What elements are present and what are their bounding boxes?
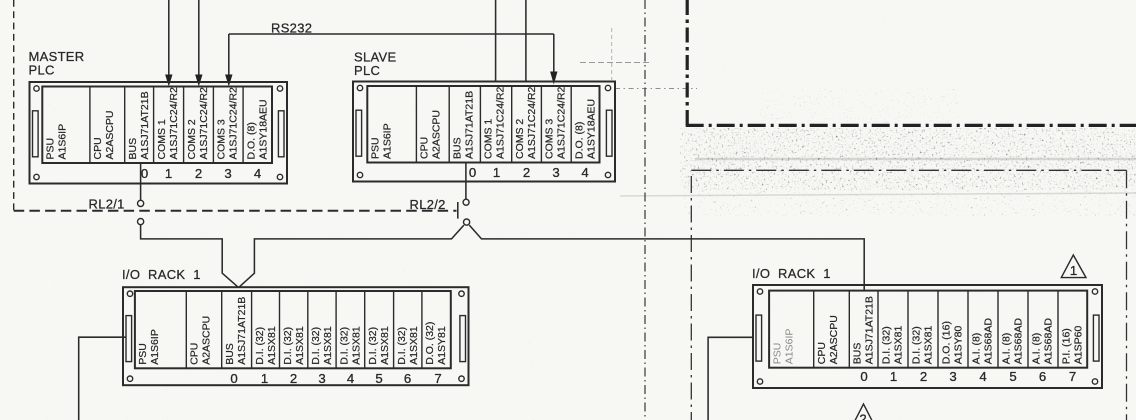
svg-text:2: 2 (920, 369, 927, 384)
svg-text:PLC: PLC (29, 63, 55, 78)
svg-text:7: 7 (1069, 369, 1076, 384)
svg-text:A1S6IP: A1S6IP (783, 329, 795, 365)
svg-text:D.I. (32): D.I. (32) (367, 327, 379, 365)
svg-text:1: 1 (261, 371, 268, 386)
svg-text:A1SX81: A1SX81 (922, 326, 934, 365)
svg-text:3: 3 (552, 165, 559, 180)
svg-text:A1SJ71AT21B: A1SJ71AT21B (864, 296, 876, 364)
svg-text:CPU: CPU (189, 343, 201, 365)
svg-text:3: 3 (224, 166, 231, 181)
svg-text:A1SJ71AT21B: A1SJ71AT21B (139, 91, 151, 159)
svg-text:A.I. (8): A.I. (8) (970, 333, 982, 365)
svg-text:BUS: BUS (224, 343, 236, 365)
svg-text:2: 2 (523, 165, 530, 180)
svg-text:A2ASCPU: A2ASCPU (431, 110, 443, 159)
svg-text:1: 1 (165, 166, 172, 181)
svg-text:A1SX81: A1SX81 (322, 326, 334, 365)
svg-text:CPU: CPU (419, 137, 431, 159)
svg-text:RL2/2: RL2/2 (410, 197, 446, 212)
svg-text:0: 0 (860, 369, 867, 384)
svg-text:A1S68AD: A1S68AD (1012, 318, 1024, 365)
svg-text:A1SY81: A1SY81 (436, 326, 448, 365)
svg-text:PSU: PSU (137, 343, 149, 365)
svg-text:A1SX81: A1SX81 (892, 326, 904, 365)
svg-text:A1SY18AEU: A1SY18AEU (257, 99, 269, 159)
svg-text:4: 4 (581, 165, 588, 180)
svg-text:RL2/1: RL2/1 (89, 197, 125, 212)
svg-text:A1S6IP: A1S6IP (382, 123, 394, 159)
svg-text:A1SJ71C24/R2: A1SJ71C24/R2 (198, 87, 210, 160)
svg-text:BUS: BUS (452, 137, 464, 159)
svg-text:0: 0 (230, 371, 237, 386)
svg-text:A1SX81: A1SX81 (408, 326, 420, 365)
svg-text:P.I. (16): P.I. (16) (1060, 328, 1072, 364)
svg-text:1: 1 (890, 369, 897, 384)
svg-text:D.I. (32): D.I. (32) (396, 327, 408, 365)
svg-text:A2ASCPU: A2ASCPU (201, 316, 213, 365)
svg-text:3: 3 (949, 369, 956, 384)
svg-text:BUS: BUS (127, 138, 139, 160)
svg-text:I/O RACK 1: I/O RACK 1 (122, 267, 201, 282)
svg-text:A1SX81: A1SX81 (379, 326, 391, 365)
svg-text:A1SX81: A1SX81 (350, 326, 362, 365)
svg-text:D.I. (32): D.I. (32) (880, 326, 892, 364)
svg-text:D.I. (32): D.I. (32) (910, 326, 922, 364)
svg-text:PSU: PSU (771, 343, 783, 365)
svg-text:A1S68AD: A1S68AD (1042, 318, 1054, 365)
svg-text:D.O. (8): D.O. (8) (245, 122, 257, 159)
svg-text:COMS 3: COMS 3 (216, 119, 228, 159)
svg-text:2: 2 (195, 166, 202, 181)
svg-text:A1SY80: A1SY80 (952, 326, 964, 365)
svg-text:PLC: PLC (354, 63, 380, 78)
svg-text:CPU: CPU (92, 137, 104, 159)
svg-text:A1SX81: A1SX81 (294, 326, 306, 365)
svg-text:COMS 3: COMS 3 (544, 119, 556, 159)
svg-text:2: 2 (859, 412, 866, 420)
svg-text:D.O. (32): D.O. (32) (424, 322, 436, 365)
svg-text:D.I. (32): D.I. (32) (254, 327, 266, 365)
svg-text:0: 0 (141, 166, 148, 181)
svg-text:A1SJ71C24/R2: A1SJ71C24/R2 (495, 86, 507, 159)
svg-text:A1SJ71C24/R2: A1SJ71C24/R2 (228, 87, 240, 160)
svg-text:5: 5 (375, 371, 382, 386)
svg-text:A1S6IP: A1S6IP (149, 329, 161, 365)
svg-text:A1SJ71C24/R2: A1SJ71C24/R2 (168, 87, 180, 160)
svg-text:PSU: PSU (370, 137, 382, 159)
svg-text:COMS 2: COMS 2 (514, 119, 526, 159)
svg-text:1: 1 (1070, 263, 1077, 278)
svg-text:PSU: PSU (45, 138, 57, 160)
svg-text:A.I. (8): A.I. (8) (1030, 333, 1042, 365)
svg-text:COMS 1: COMS 1 (483, 119, 495, 159)
svg-text:D.I. (32): D.I. (32) (338, 327, 350, 365)
svg-text:A1SY18AEU: A1SY18AEU (586, 99, 598, 159)
svg-text:A1S68AD: A1S68AD (982, 318, 994, 365)
svg-text:4: 4 (347, 371, 354, 386)
svg-text:I/O RACK 1: I/O RACK 1 (752, 266, 831, 281)
svg-text:A1SJ71AT21B: A1SJ71AT21B (464, 91, 476, 159)
svg-text:COMS 1: COMS 1 (156, 119, 168, 159)
svg-text:2: 2 (290, 371, 297, 386)
svg-text:6: 6 (1039, 369, 1046, 384)
svg-text:D.O. (16): D.O. (16) (940, 321, 952, 364)
svg-text:A1S6IP: A1S6IP (57, 124, 69, 160)
svg-text:BUS: BUS (852, 343, 864, 365)
svg-text:4: 4 (254, 166, 261, 181)
svg-text:3: 3 (318, 371, 325, 386)
svg-text:A1SJ71C24/R2: A1SJ71C24/R2 (526, 86, 538, 159)
svg-text:7: 7 (434, 371, 441, 386)
svg-text:A.I. (8): A.I. (8) (1000, 333, 1012, 365)
svg-text:6: 6 (404, 371, 411, 386)
svg-text:A2ASCPU: A2ASCPU (104, 110, 116, 159)
svg-text:A2ASCPU: A2ASCPU (828, 315, 840, 364)
svg-text:D.I. (32): D.I. (32) (282, 327, 294, 365)
svg-text:A1SP60: A1SP60 (1072, 326, 1084, 365)
svg-text:RS232: RS232 (271, 21, 312, 36)
svg-text:0: 0 (469, 165, 476, 180)
svg-text:COMS 2: COMS 2 (186, 119, 198, 159)
svg-text:A1SX81: A1SX81 (266, 326, 278, 365)
svg-text:CPU: CPU (816, 342, 828, 364)
svg-text:1: 1 (493, 165, 500, 180)
svg-text:D.I. (32): D.I. (32) (310, 327, 322, 365)
svg-text:5: 5 (1009, 369, 1016, 384)
svg-text:A1SJ71AT21B: A1SJ71AT21B (236, 297, 248, 365)
svg-text:4: 4 (979, 369, 986, 384)
svg-text:A1SJ71C24/R2: A1SJ71C24/R2 (556, 86, 568, 159)
svg-text:D.O. (8): D.O. (8) (574, 122, 586, 159)
